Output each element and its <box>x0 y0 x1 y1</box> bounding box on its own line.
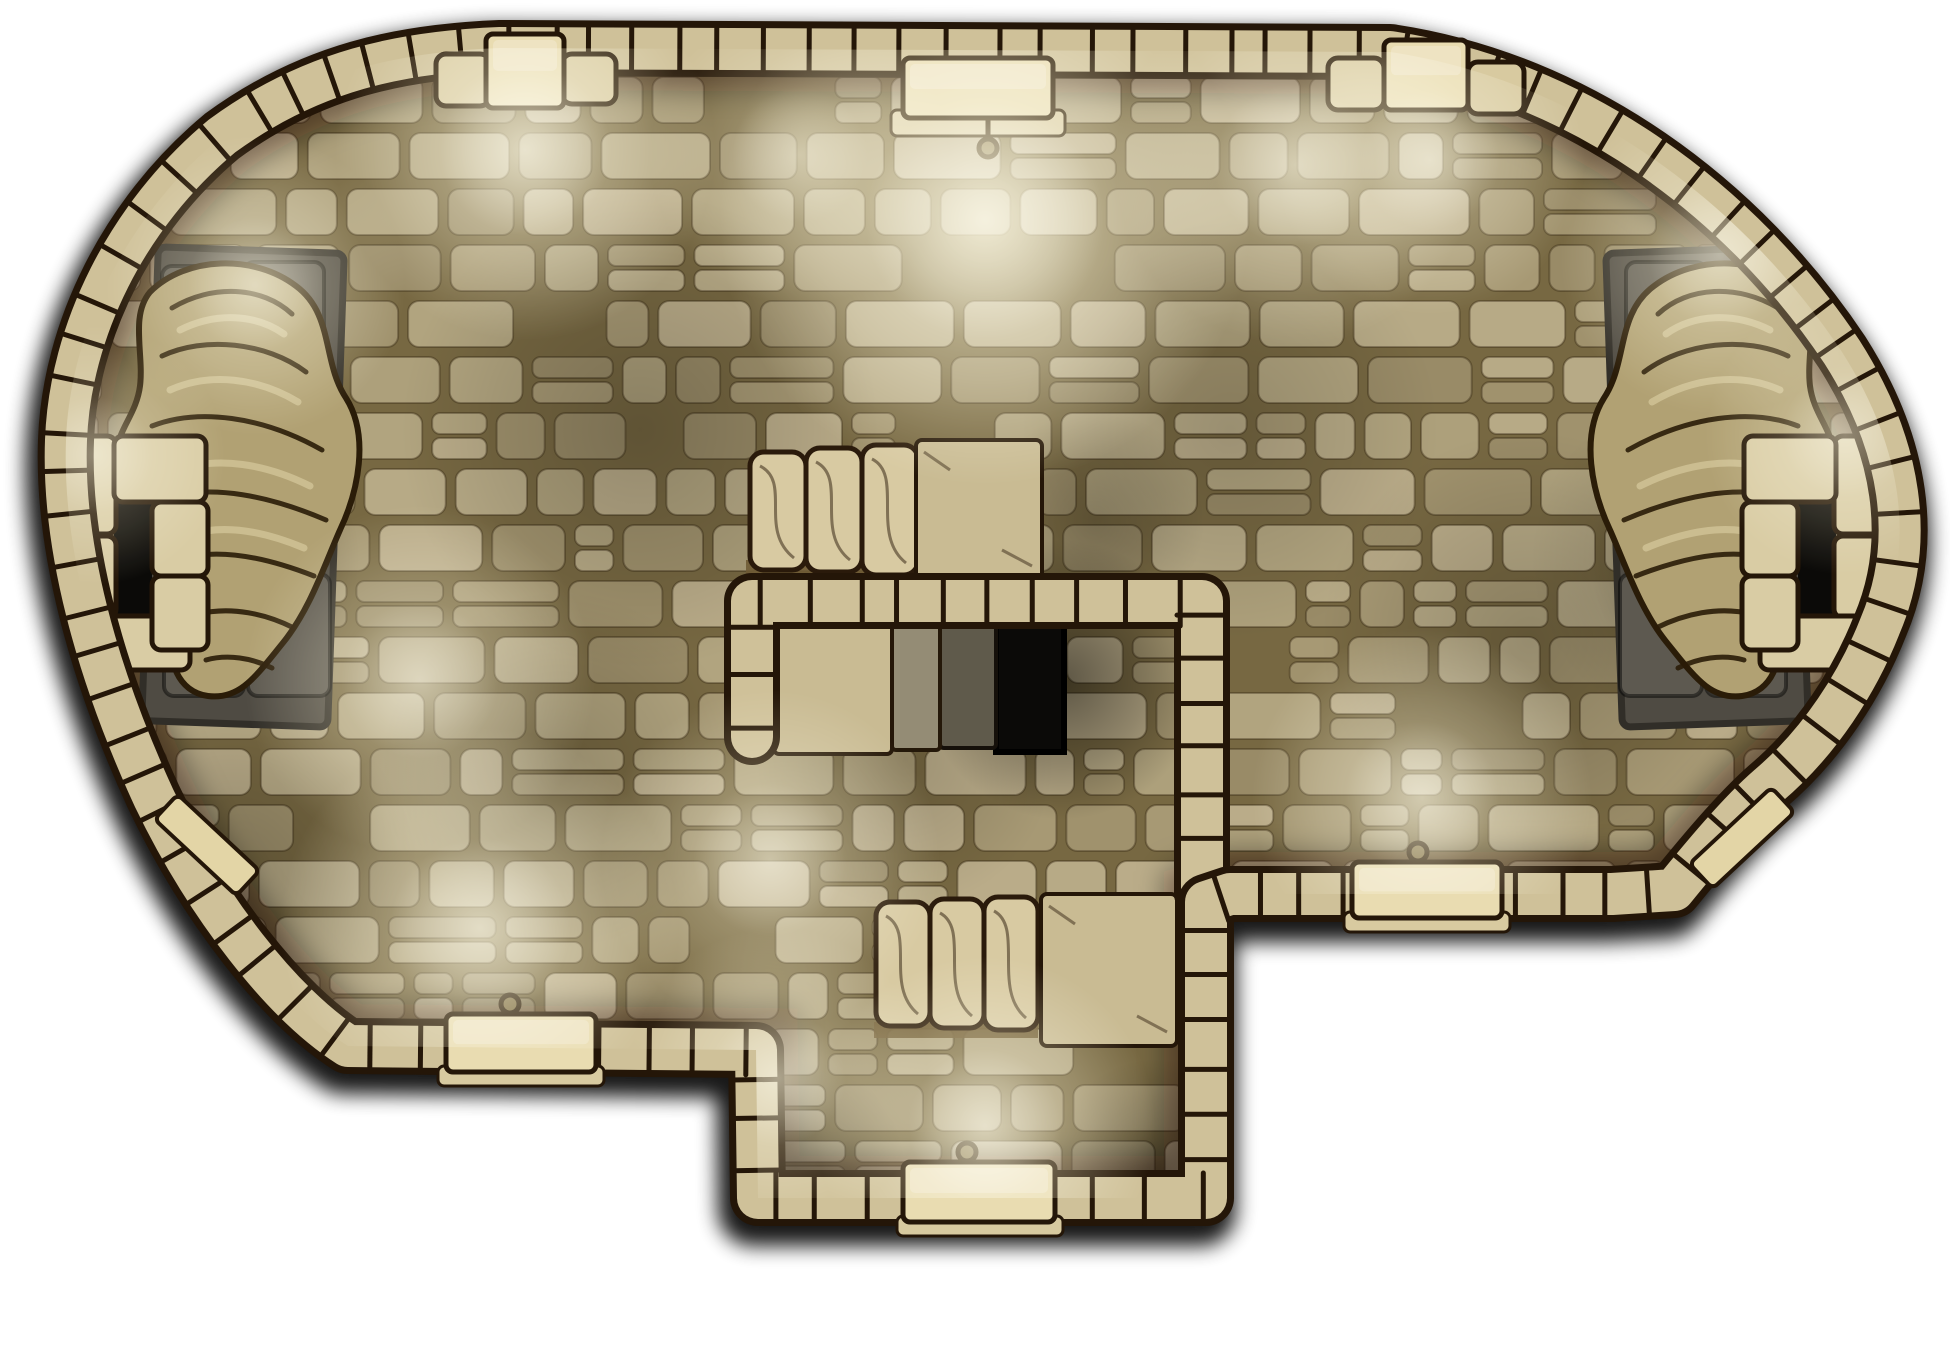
battlemap-stage <box>0 0 1950 1350</box>
battlemap-svg <box>0 0 1950 1350</box>
